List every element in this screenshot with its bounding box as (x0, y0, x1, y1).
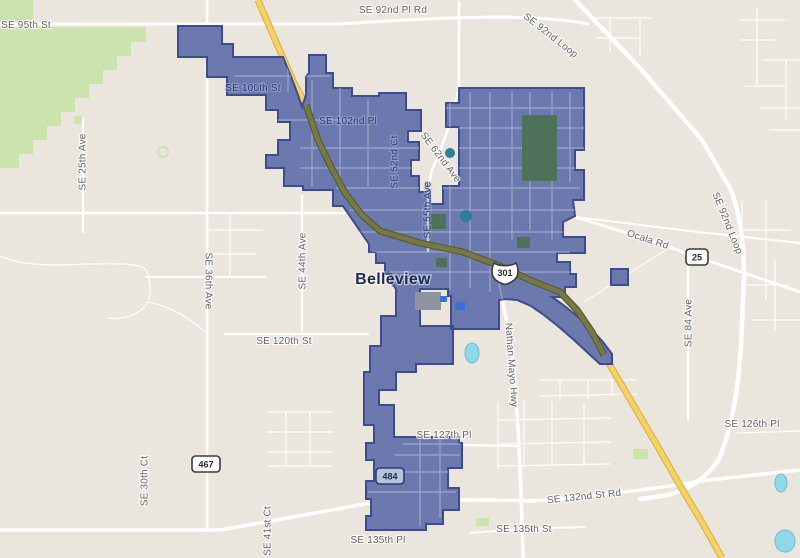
road-label-se-92nd-pl-rd: SE 92nd Pl Rd (359, 5, 427, 16)
road-label-se-36th-ave: SE 36th Ave (203, 252, 214, 309)
route-shield-sr-25: 25 (686, 249, 708, 265)
road-label-se-52nd-ct: SE 52nd Ct (390, 135, 401, 188)
road-label-se-41st-ct: SE 41st Ct (263, 506, 274, 556)
pond (465, 343, 479, 363)
poi-building (440, 296, 447, 302)
park-patch (522, 115, 557, 181)
pond (775, 474, 787, 492)
road-label-se-126th-pl: SE 126th Pl (724, 419, 779, 430)
route-shield-us-301: 301 (492, 263, 518, 285)
poi-building (455, 302, 465, 310)
map-canvas[interactable]: SE 95th St SE 92nd Pl Rd SE 92nd Loop SE… (0, 0, 800, 558)
svg-text:484: 484 (382, 472, 397, 482)
park-patch (436, 258, 447, 267)
pond (775, 530, 795, 552)
road-label-se-135th-pl: SE 135th Pl (350, 535, 405, 546)
small-pond (460, 210, 472, 222)
road-label-se-120th-st: SE 120th St (256, 336, 312, 347)
city-label-belleview: Belleview (355, 271, 431, 288)
park-patch (517, 237, 530, 248)
road-label-se-30th-ct: SE 30th Ct (140, 456, 151, 506)
road-label-se-100th-st: SE 100th St (225, 83, 281, 94)
road-label-se-25th-ave: SE 25th Ave (78, 133, 89, 190)
road-label-se-102nd-pl: SE 102nd Pl (319, 116, 377, 127)
road-label-se-95th-st: SE 95th St (1, 20, 51, 31)
road-label-se-44th-ave: SE 44th Ave (298, 232, 309, 289)
route-shield-sr-484: 484 (376, 468, 404, 484)
svg-text:25: 25 (692, 253, 702, 263)
svg-text:467: 467 (198, 460, 213, 470)
road-label-se-127th-pl: SE 127th Pl (416, 430, 471, 441)
building-footprint (415, 292, 441, 310)
map-viewport[interactable]: SE 95th St SE 92nd Pl Rd SE 92nd Loop SE… (0, 0, 800, 558)
road-label-se-135th-st: SE 135th St (496, 524, 552, 535)
road-label-se-84-ave: SE 84 Ave (684, 299, 695, 348)
road-label-se-55th-ave: SE 55th Ave (423, 181, 434, 238)
route-shield-sr-467: 467 (192, 456, 220, 472)
svg-text:301: 301 (497, 268, 512, 278)
